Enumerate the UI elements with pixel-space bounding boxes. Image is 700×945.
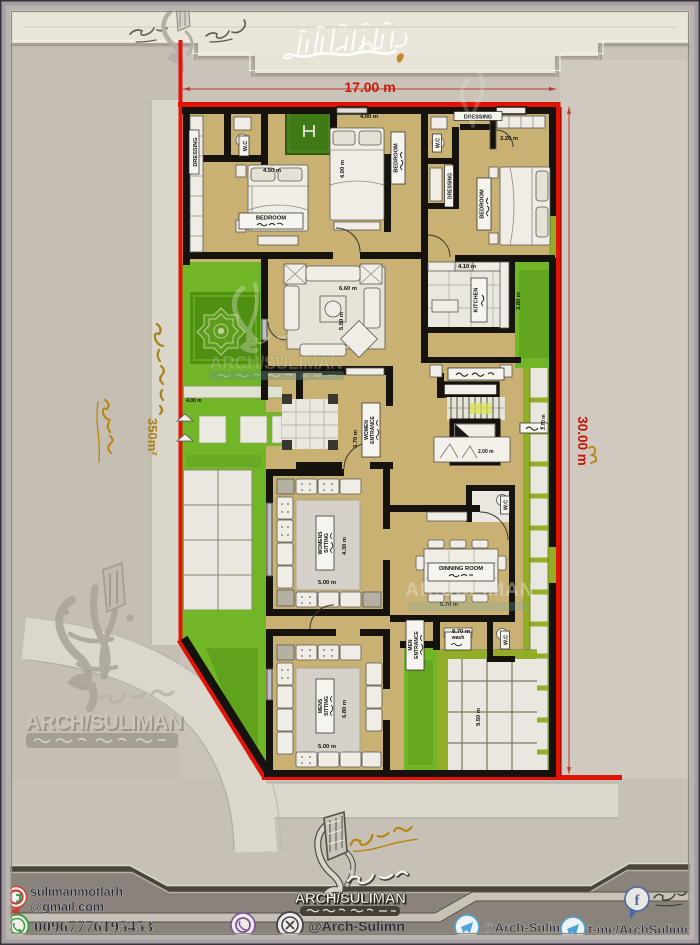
svg-text:@gmail.com: @gmail.com [30,900,104,914]
svg-text:ARCH/SULIMAN: ARCH/SULIMAN [25,711,182,734]
svg-text:30.00 m: 30.00 m [575,416,590,466]
svg-text:350m²: 350m² [145,418,160,456]
svg-text:3.20 m: 3.20 m [500,136,518,142]
svg-text:9.50 m: 9.50 m [476,708,482,726]
svg-text:W.C: W.C [243,141,249,152]
svg-text:wash: wash [451,635,465,641]
svg-text:4.00 m: 4.00 m [360,114,378,120]
svg-text:sulimanmotlarh: sulimanmotlarh [30,885,123,899]
svg-text:BEDROOM: BEDROOM [394,143,400,173]
svg-text:4.50 m: 4.50 m [263,168,281,174]
svg-text:@Arch-Sulimn: @Arch-Sulimn [308,918,405,934]
svg-text:SITTING: SITTING [324,696,330,716]
svg-text:BEDROOM: BEDROOM [256,216,286,222]
svg-text:2.00 m: 2.00 m [478,449,494,455]
svg-text:17.00 m: 17.00 m [344,79,395,95]
svg-text:KITCHEN: KITCHEN [474,288,480,313]
svg-text:W.C: W.C [436,138,442,148]
svg-text:3.70 m: 3.70 m [541,414,547,430]
svg-text:8.70 m: 8.70 m [452,629,470,635]
svg-text:ARCH/SULIMAN: ARCH/SULIMAN [294,890,405,907]
svg-text:AR.SULIMAN: AR.SULIMAN [405,580,534,601]
svg-text:DRESSING: DRESSING [193,137,199,166]
svg-text:4.00 m: 4.00 m [340,160,346,178]
svg-text:3.80 m: 3.80 m [516,292,522,310]
svg-text:5.50 m: 5.50 m [339,312,345,330]
svg-text:ARCH/SULIMAN: ARCH/SULIMAN [210,353,343,373]
svg-text:BEDROOM: BEDROOM [480,189,486,219]
svg-text:ENTRANCE: ENTRANCE [414,630,420,658]
svg-text:6.80 m: 6.80 m [342,700,348,718]
svg-text:DINNING ROOM: DINNING ROOM [439,566,483,572]
svg-text:4.30 m: 4.30 m [342,537,348,555]
svg-text:W.C: W.C [504,635,510,645]
svg-text:@Arch-Sulimn: @Arch-Sulimn [482,920,572,935]
svg-text:4.00 m: 4.00 m [186,398,202,404]
svg-text:5.00 m: 5.00 m [318,744,336,750]
svg-text:DRESSING: DRESSING [448,173,454,199]
svg-text:5.00 m: 5.00 m [318,580,336,586]
svg-text:SITTING: SITTING [324,533,330,553]
svg-text:3.70 m: 3.70 m [353,430,359,448]
svg-text:ENTRANCE: ENTRANCE [370,415,376,443]
svg-text:4.10 m: 4.10 m [458,264,476,270]
svg-text:W.C: W.C [504,500,510,510]
svg-text:6.60 m: 6.60 m [339,286,357,292]
